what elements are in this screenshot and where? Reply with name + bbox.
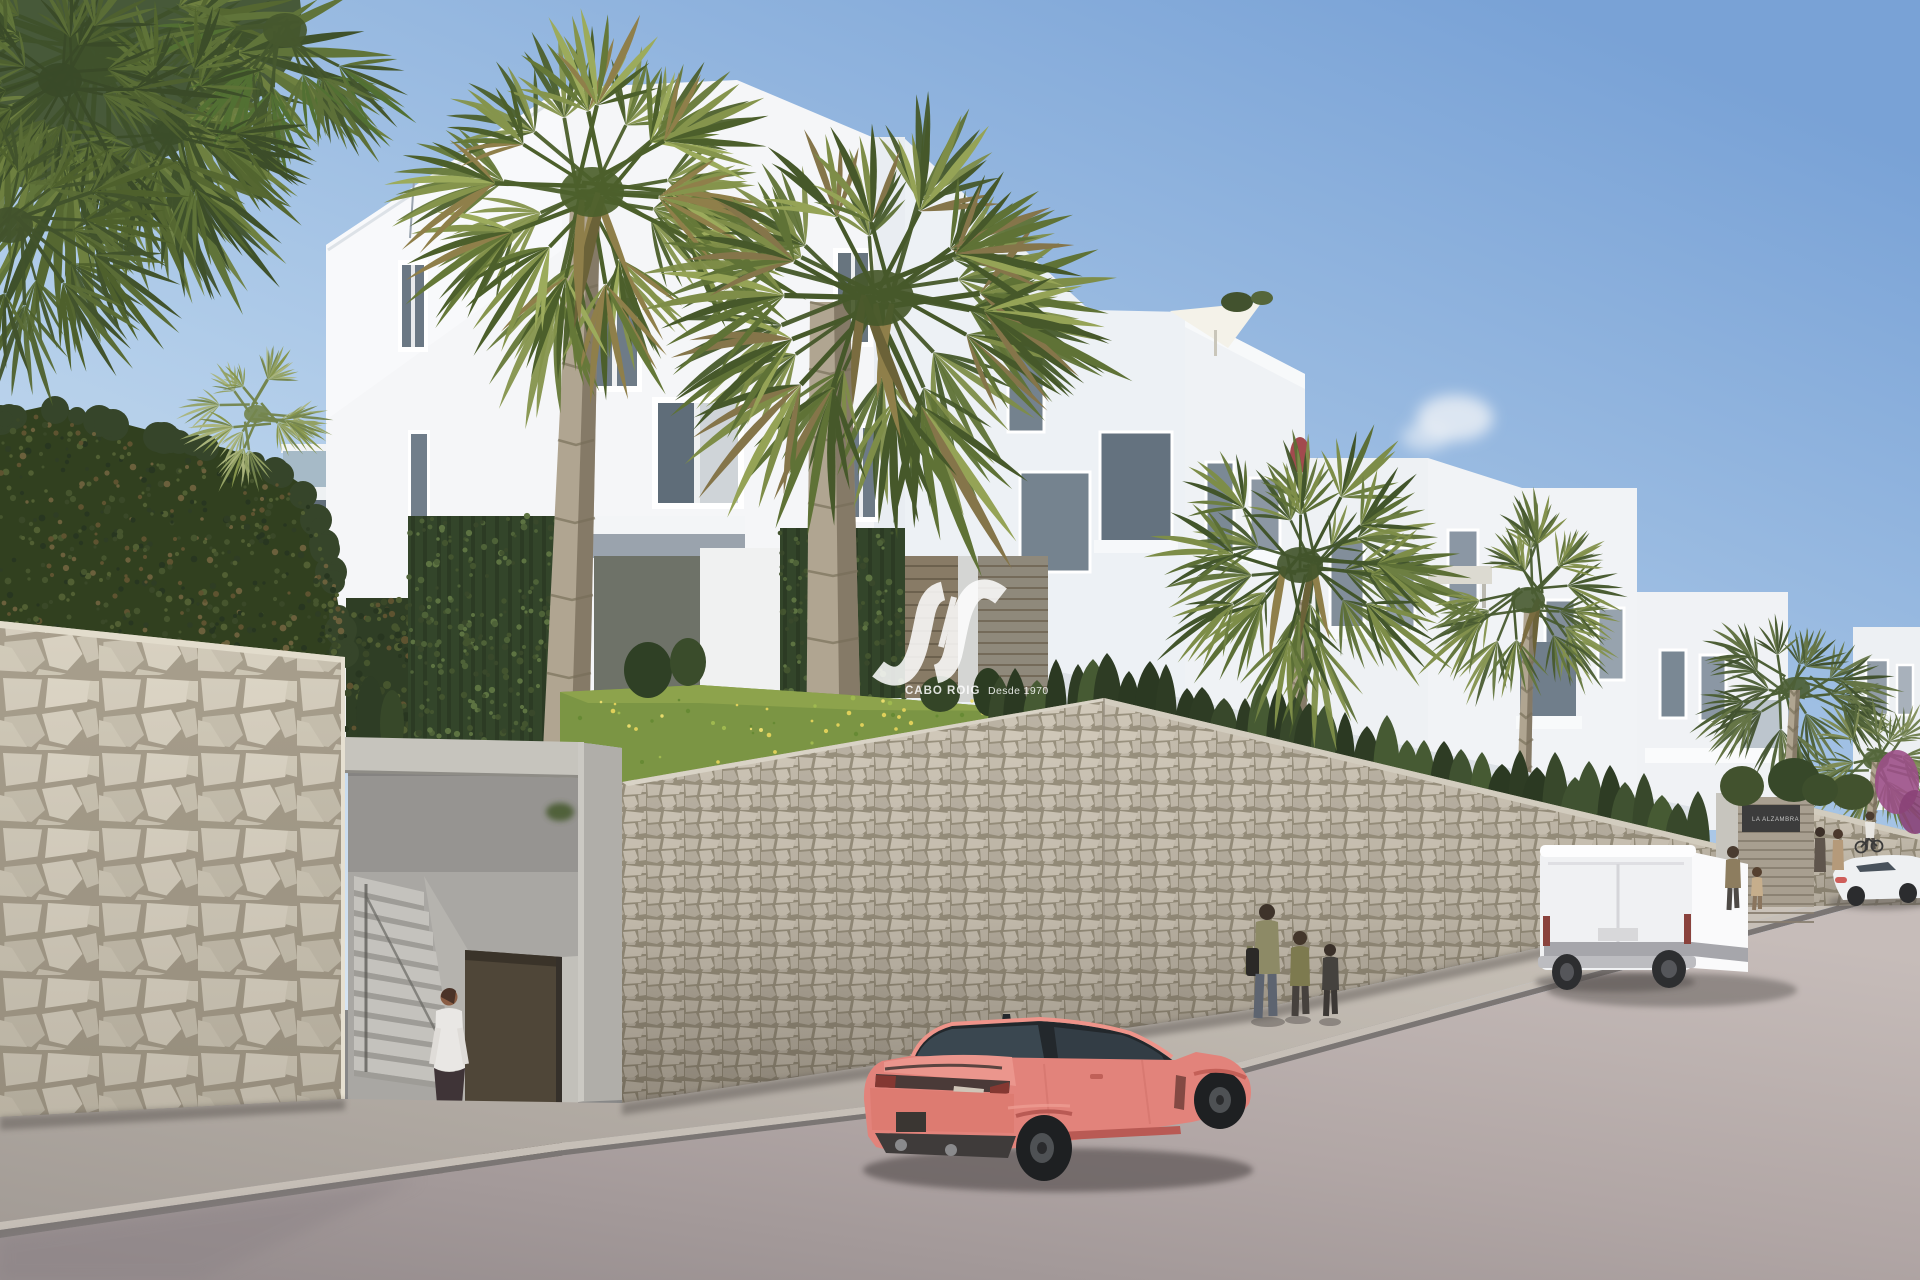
svg-text:Desde 1970: Desde 1970 [988, 685, 1049, 697]
svg-text:LA ALZAMBRA: LA ALZAMBRA [1752, 817, 1799, 823]
svg-text:CABO ROIG: CABO ROIG [905, 685, 980, 697]
